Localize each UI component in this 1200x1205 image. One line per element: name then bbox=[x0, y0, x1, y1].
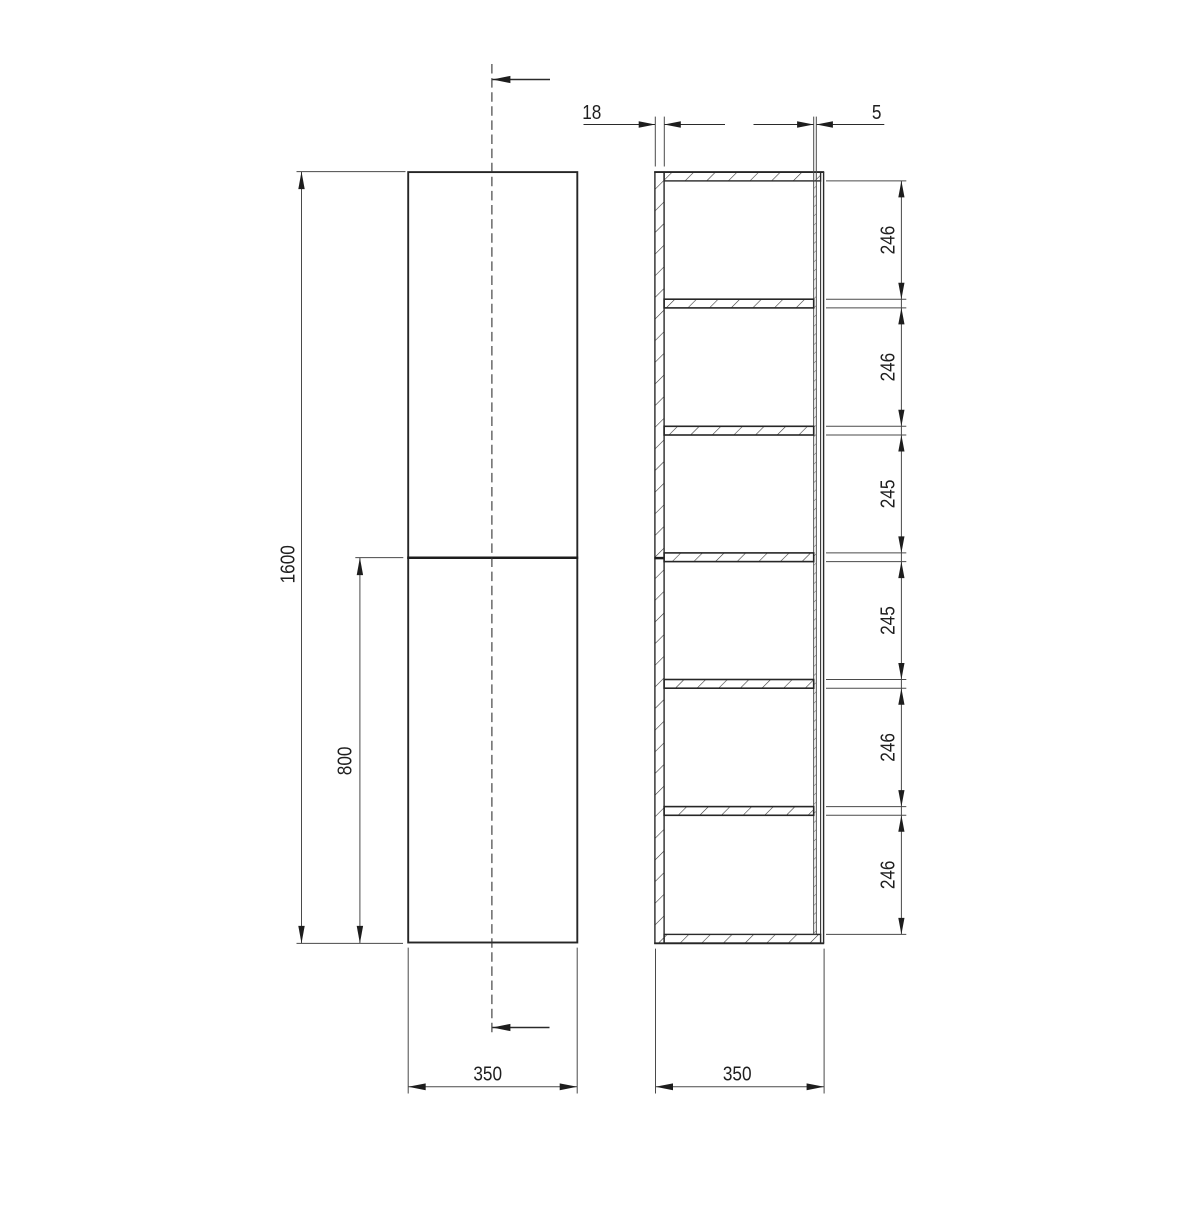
svg-text:5: 5 bbox=[872, 101, 882, 124]
svg-text:1600: 1600 bbox=[276, 545, 299, 583]
svg-text:18: 18 bbox=[582, 101, 601, 124]
svg-text:246: 246 bbox=[876, 226, 899, 255]
svg-text:350: 350 bbox=[723, 1062, 752, 1085]
svg-text:800: 800 bbox=[333, 747, 356, 776]
svg-text:350: 350 bbox=[473, 1062, 502, 1085]
svg-text:245: 245 bbox=[876, 480, 899, 509]
svg-text:246: 246 bbox=[876, 733, 899, 762]
svg-text:245: 245 bbox=[876, 606, 899, 635]
svg-text:246: 246 bbox=[876, 861, 899, 890]
svg-text:246: 246 bbox=[876, 353, 899, 382]
